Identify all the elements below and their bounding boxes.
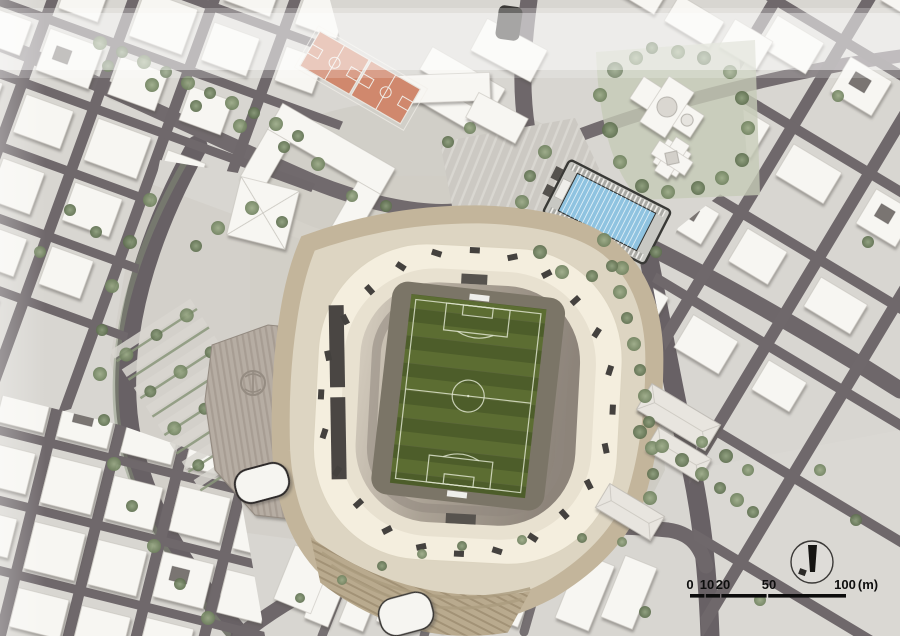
site-plan-page: ΠΑΟΚ: [0, 0, 900, 636]
north-arrow-icon: [791, 541, 833, 583]
scale-label: 20: [716, 577, 730, 592]
scale-label: 0: [686, 577, 693, 592]
scale-label: 50: [762, 577, 776, 592]
white-overlay-band-fade: [0, 70, 900, 78]
football-pitch: [370, 280, 567, 512]
left-white-wash: [0, 0, 46, 636]
white-overlay-band: [0, 13, 900, 70]
scale-label: 10: [700, 577, 714, 592]
scale-label: 100: [834, 577, 856, 592]
scale-unit-label: (m): [858, 577, 878, 592]
white-overlay-band-edge: [0, 8, 900, 13]
site-plan-map: ΠΑΟΚ: [0, 0, 900, 636]
